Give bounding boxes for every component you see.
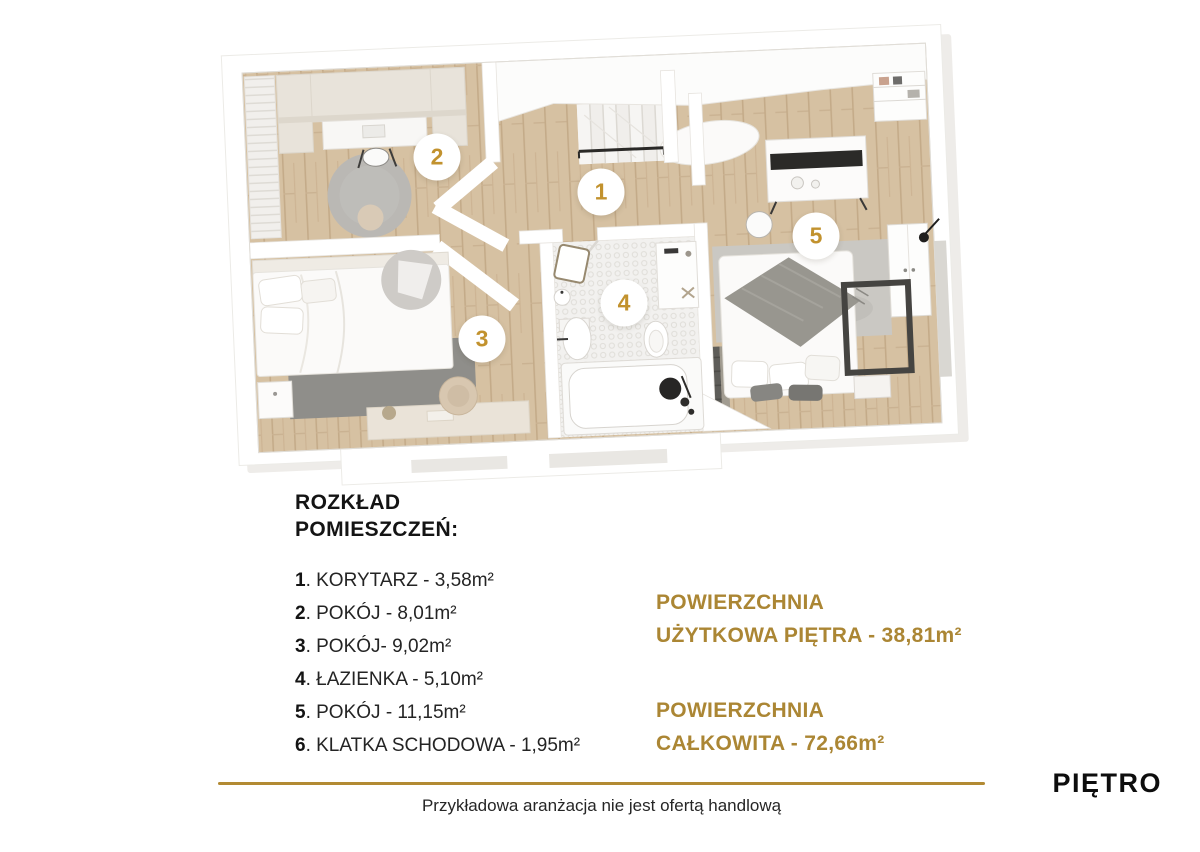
usable-area-line2: UŻYTKOWA PIĘTRA - 38,81m² [656, 619, 962, 652]
footer-divider-rule [218, 782, 985, 785]
staircase [577, 101, 665, 165]
room-list-item-2: 2. POKÓJ - 8,01m² [295, 597, 580, 630]
room-badge-2: 2 [414, 134, 461, 181]
floor-plan-render [0, 0, 1200, 490]
usable-area-summary: POWIERZCHNIA UŻYTKOWA PIĘTRA - 38,81m² [656, 586, 962, 652]
room-list-item-5: 5. POKÓJ - 11,15m² [295, 696, 580, 729]
room-badge-1: 1 [578, 169, 625, 216]
room-badge-3: 3 [459, 316, 506, 363]
building-plate [221, 24, 969, 489]
legend-title: ROZKŁAD POMIESZCZEŃ: [295, 489, 458, 543]
total-area-line1: POWIERZCHNIA [656, 694, 885, 727]
room-badge-4: 4 [601, 280, 648, 327]
room-list-item-4: 4. ŁAZIENKA - 5,10m² [295, 663, 580, 696]
room-list-item-6: 6. KLATKA SCHODOWA - 1,95m² [295, 729, 580, 762]
floor-label: PIĘTRO [1052, 768, 1162, 799]
usable-area-line1: POWIERZCHNIA [656, 586, 962, 619]
total-area-line2: CAŁKOWITA - 72,66m² [656, 727, 885, 760]
total-area-summary: POWIERZCHNIA CAŁKOWITA - 72,66m² [656, 694, 885, 760]
disclaimer-text: Przykładowa aranżacja nie jest ofertą ha… [218, 796, 985, 816]
room-list-item-1: 1. KORYTARZ - 3,58m² [295, 564, 580, 597]
legend-title-line2: POMIESZCZEŃ: [295, 516, 458, 543]
legend-title-line1: ROZKŁAD [295, 489, 458, 516]
room-list: 1. KORYTARZ - 3,58m² 2. POKÓJ - 8,01m² 3… [295, 564, 580, 762]
room-badge-5: 5 [793, 213, 840, 260]
room-list-item-3: 3. POKÓJ- 9,02m² [295, 630, 580, 663]
